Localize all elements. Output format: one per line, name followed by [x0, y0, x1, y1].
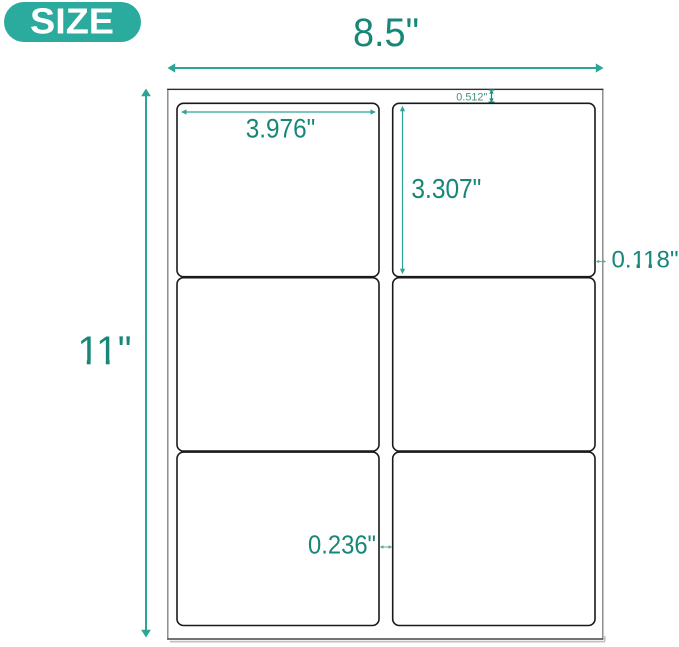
svg-text:0.236": 0.236"	[308, 530, 376, 560]
svg-text:3.976": 3.976"	[246, 113, 316, 143]
svg-text:0.512": 0.512"	[456, 92, 487, 104]
svg-text:3.307": 3.307"	[411, 173, 481, 204]
svg-text:8.5": 8.5"	[353, 11, 419, 55]
svg-text:11": 11"	[78, 329, 132, 373]
svg-text:SIZE: SIZE	[30, 1, 114, 42]
svg-text:0.118": 0.118"	[612, 247, 679, 274]
